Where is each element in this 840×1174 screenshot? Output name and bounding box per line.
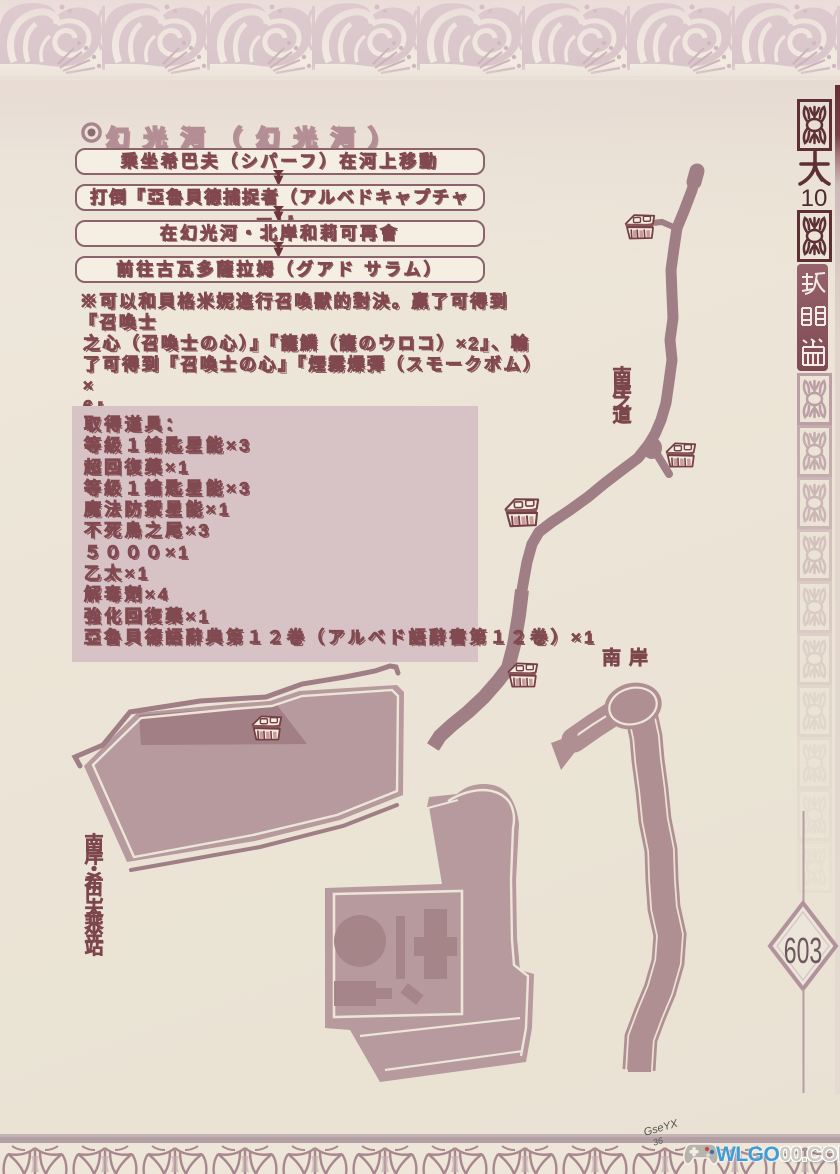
svg-text:南岸: 南岸	[602, 647, 656, 669]
svg-text:南岸・希巴夫乘坐站: 南岸・希巴夫乘坐站	[82, 833, 104, 956]
svg-text:南岸之道: 南岸之道	[610, 366, 632, 424]
svg-text:10: 10	[801, 185, 828, 212]
svg-text:603: 603	[784, 932, 822, 971]
